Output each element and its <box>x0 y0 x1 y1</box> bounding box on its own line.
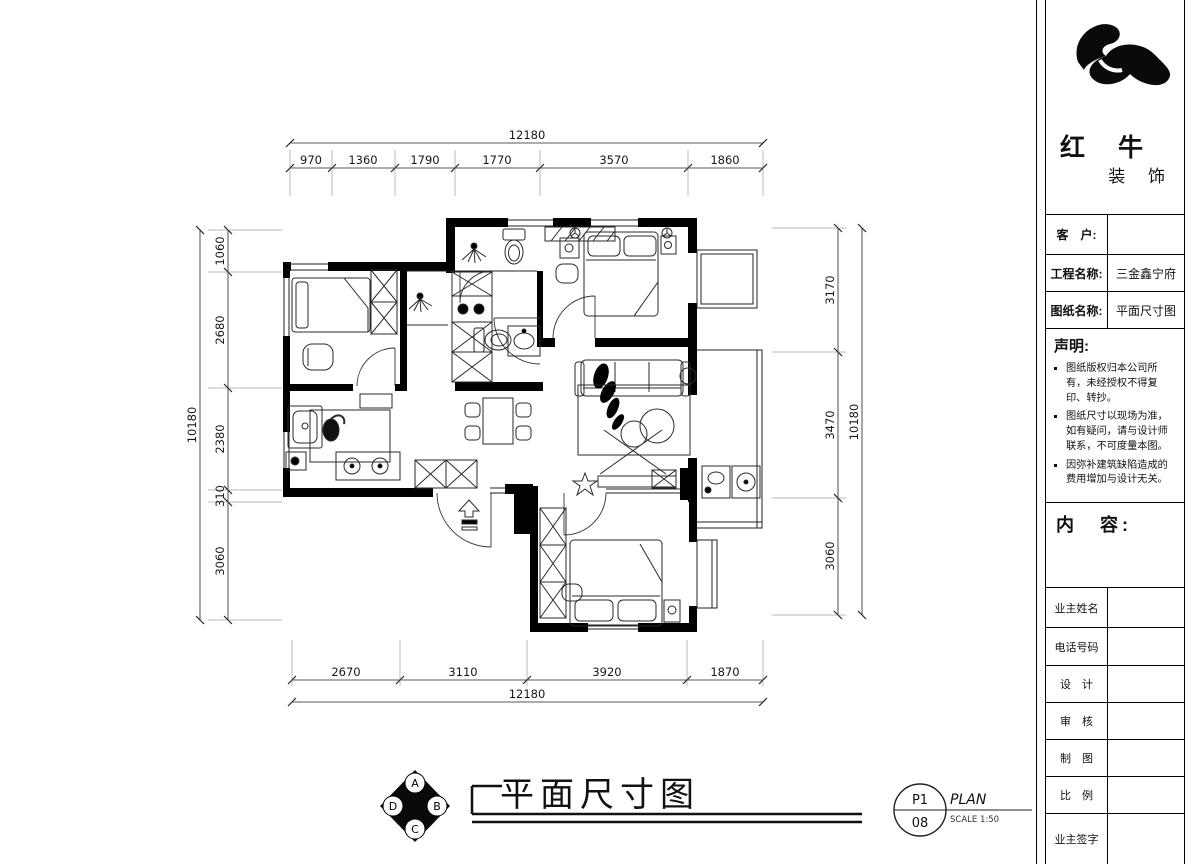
stove-burners-icon <box>458 304 484 314</box>
statement-section: 声明: 图纸版权归本公司所有，未经授权不得复印、转抄。 图纸尺寸以现场为准，如有… <box>1046 329 1184 503</box>
dim-bottom-seg: 1870 <box>710 665 739 679</box>
reviewer-value <box>1108 703 1184 739</box>
dim-right-seg: 3170 <box>823 275 837 304</box>
drawing-title-group: 平面尺寸图 <box>472 776 862 822</box>
owner-signature-value <box>1108 814 1184 864</box>
drafter-label: 制 图 <box>1046 740 1108 776</box>
floor-plan-sheet: 12180 970 1360 1790 1770 3570 1860 12180… <box>0 0 1200 864</box>
bath-door-arc <box>494 318 540 364</box>
bull-logo-icon <box>1056 14 1176 134</box>
dim-left-seg: 2380 <box>213 424 227 453</box>
entry-arrow-icon <box>459 500 479 530</box>
star-icon <box>573 473 597 495</box>
drawing-name-label: 图纸名称: <box>1046 292 1108 328</box>
sheet-number-bottom: 08 <box>912 816 929 831</box>
drawing-name-row: 图纸名称: 平面尺寸图 <box>1046 292 1184 329</box>
content-section: 内 容: <box>1046 503 1184 588</box>
sheet-number-top: P1 <box>912 793 928 808</box>
bedroom-left-door-arc <box>357 348 395 386</box>
dim-left-seg: 2680 <box>213 315 227 344</box>
plant-icon <box>590 361 626 431</box>
wardrobe-bottom-icon <box>540 508 566 618</box>
sheet-scale-label: SCALE 1:50 <box>950 815 999 825</box>
owner-name-label: 业主姓名 <box>1046 588 1108 627</box>
dim-bottom-seg: 3110 <box>448 665 477 679</box>
bedroom-bottom-door-arc <box>564 493 606 535</box>
designer-label: 设 计 <box>1046 666 1108 702</box>
sheet-number-group: P1 08 PLAN SCALE 1:50 <box>894 784 1032 836</box>
floor-plan-drawing: 12180 970 1360 1790 1770 3570 1860 12180… <box>0 0 1040 864</box>
compass-icon: A B C D <box>380 770 450 842</box>
dim-top-seg: 1790 <box>410 153 439 167</box>
shower-icon-2 <box>407 293 448 325</box>
dim-top-total: 12180 <box>509 128 546 142</box>
content-label: 内 容: <box>1056 515 1132 535</box>
drawing-name-value: 平面尺寸图 <box>1108 292 1184 328</box>
utility-sink-icon <box>702 466 730 498</box>
scale-row: 比 例 <box>1046 777 1184 814</box>
statement-list: 图纸版权归本公司所有，未经授权不得复印、转抄。 图纸尺寸以现场为准，如有疑问，请… <box>1054 362 1178 488</box>
designer-row: 设 计 <box>1046 666 1184 703</box>
statement-item: 图纸尺寸以现场为准，如有疑问，请与设计师联系，不可度量本图。 <box>1066 410 1178 454</box>
compass-d: D <box>389 800 397 813</box>
compass-c: C <box>411 823 419 836</box>
dim-top-seg: 3570 <box>599 153 628 167</box>
tv-console-icon <box>598 430 676 488</box>
shower-door-arc <box>460 271 492 303</box>
title-block: 红 牛 装 饰 客 户: 工程名称: 三金鑫宁府 图纸名称: 平面尺寸图 声明:… <box>1036 0 1193 864</box>
dim-left-seg: 1060 <box>213 236 227 265</box>
statement-item: 图纸版权归本公司所有，未经授权不得复印、转抄。 <box>1066 362 1178 406</box>
owner-signature-label: 业主签字 <box>1046 814 1108 864</box>
scale-value <box>1108 777 1184 813</box>
company-logo-cell: 红 牛 装 饰 <box>1046 0 1184 215</box>
phone-value <box>1108 628 1184 665</box>
dim-left-seg: 3060 <box>213 546 227 575</box>
dim-top-seg: 1860 <box>710 153 739 167</box>
reviewer-row: 审 核 <box>1046 703 1184 740</box>
project-value: 三金鑫宁府 <box>1108 255 1184 291</box>
bed-single-left <box>292 278 370 332</box>
dim-right-seg: 3470 <box>823 410 837 439</box>
statement-title: 声明: <box>1054 335 1178 356</box>
dim-bottom-seg: 3920 <box>592 665 621 679</box>
dim-right-total: 10180 <box>847 404 861 441</box>
dining-table-icon <box>465 398 531 444</box>
desk-chair-icon <box>303 344 333 370</box>
compass-b: B <box>433 800 441 813</box>
project-label: 工程名称: <box>1046 255 1108 291</box>
owner-name-value <box>1108 588 1184 627</box>
bed-double-master <box>556 232 676 316</box>
kitchen-sink-icon <box>288 406 322 448</box>
master-door-arc <box>553 296 595 338</box>
brand-name: 红 牛 <box>1060 128 1156 164</box>
client-row: 客 户: <box>1046 215 1184 255</box>
drafter-value <box>1108 740 1184 776</box>
dim-bottom-seg: 2670 <box>331 665 360 679</box>
phone-row: 电话号码 <box>1046 628 1184 666</box>
dim-top-seg: 1360 <box>348 153 377 167</box>
statement-item: 因弥补建筑缺陷造成的费用增加与设计无关。 <box>1066 459 1178 489</box>
wardrobe-left-icon <box>371 270 397 334</box>
dim-bottom-total: 12180 <box>509 687 546 701</box>
compass-a: A <box>411 777 419 790</box>
toilet-icon <box>503 229 525 264</box>
drafter-row: 制 图 <box>1046 740 1184 777</box>
washing-machine-icon <box>732 466 760 498</box>
bed-double-bottom <box>562 540 680 626</box>
client-label: 客 户: <box>1046 215 1108 254</box>
dim-top-seg: 1770 <box>482 153 511 167</box>
project-row: 工程名称: 三金鑫宁府 <box>1046 255 1184 292</box>
phone-label: 电话号码 <box>1046 628 1108 665</box>
owner-signature-row: 业主签字 <box>1046 814 1184 864</box>
reviewer-label: 审 核 <box>1046 703 1108 739</box>
dim-left-seg: 310 <box>213 485 227 507</box>
shower-icon <box>462 243 486 263</box>
sofa-icon <box>575 360 690 396</box>
client-value <box>1108 215 1184 254</box>
brand-suffix: 装 饰 <box>1108 162 1174 187</box>
dim-right-seg: 3060 <box>823 541 837 570</box>
dim-top-seg: 970 <box>300 153 322 167</box>
basin-icon <box>508 326 540 356</box>
coffee-tables-icon <box>621 368 696 447</box>
scale-label: 比 例 <box>1046 777 1108 813</box>
sheet-type-label: PLAN <box>950 792 987 808</box>
kitchen-faucet-icon <box>323 415 344 441</box>
drawing-title: 平面尺寸图 <box>500 776 700 814</box>
owner-name-row: 业主姓名 <box>1046 588 1184 628</box>
designer-value <box>1108 666 1184 702</box>
dim-left-total: 10180 <box>185 407 199 444</box>
